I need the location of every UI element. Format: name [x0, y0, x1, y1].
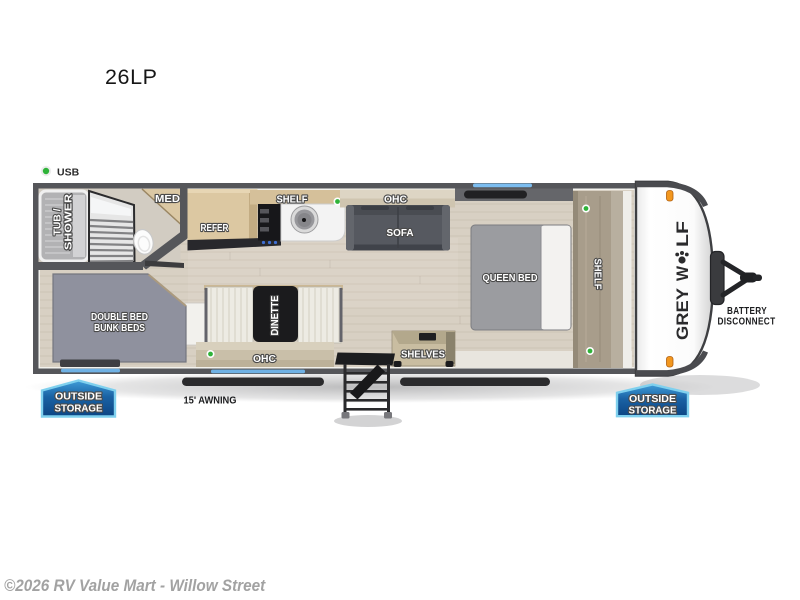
svg-text:DOUBLE BED: DOUBLE BED [91, 312, 148, 323]
svg-text:STORAGE: STORAGE [55, 404, 103, 415]
svg-text:BATTERY: BATTERY [727, 306, 767, 317]
svg-text:W: W [673, 265, 692, 281]
svg-text:STORAGE: STORAGE [629, 406, 677, 417]
svg-text:©2026 RV Value Mart - Willow S: ©2026 RV Value Mart - Willow Street [4, 577, 266, 595]
svg-text:OHC: OHC [384, 195, 407, 206]
svg-text:SHELVES: SHELVES [401, 350, 445, 361]
svg-text:TUB /: TUB / [53, 208, 64, 235]
svg-text:15' AWNING: 15' AWNING [184, 395, 237, 407]
svg-text:REFER: REFER [201, 223, 230, 234]
svg-text:QUEEN BED: QUEEN BED [483, 273, 538, 284]
svg-text:USB: USB [57, 167, 80, 179]
svg-text:OUTSIDE: OUTSIDE [629, 394, 676, 405]
svg-text:SHELF: SHELF [277, 195, 308, 206]
svg-text:LF: LF [673, 221, 692, 247]
svg-text:SOFA: SOFA [387, 228, 414, 239]
svg-text:GREY: GREY [673, 287, 692, 340]
svg-text:OHC: OHC [253, 354, 276, 365]
svg-text:BUNK BEDS: BUNK BEDS [94, 323, 145, 334]
svg-text:MED: MED [155, 194, 180, 205]
svg-text:SHOWER: SHOWER [64, 193, 75, 250]
svg-text:26LP: 26LP [105, 65, 158, 89]
svg-text:SHELF: SHELF [592, 259, 603, 290]
svg-text:DISCONNECT: DISCONNECT [718, 317, 776, 328]
svg-text:DINETTE: DINETTE [270, 295, 281, 335]
svg-text:OUTSIDE: OUTSIDE [55, 392, 102, 403]
